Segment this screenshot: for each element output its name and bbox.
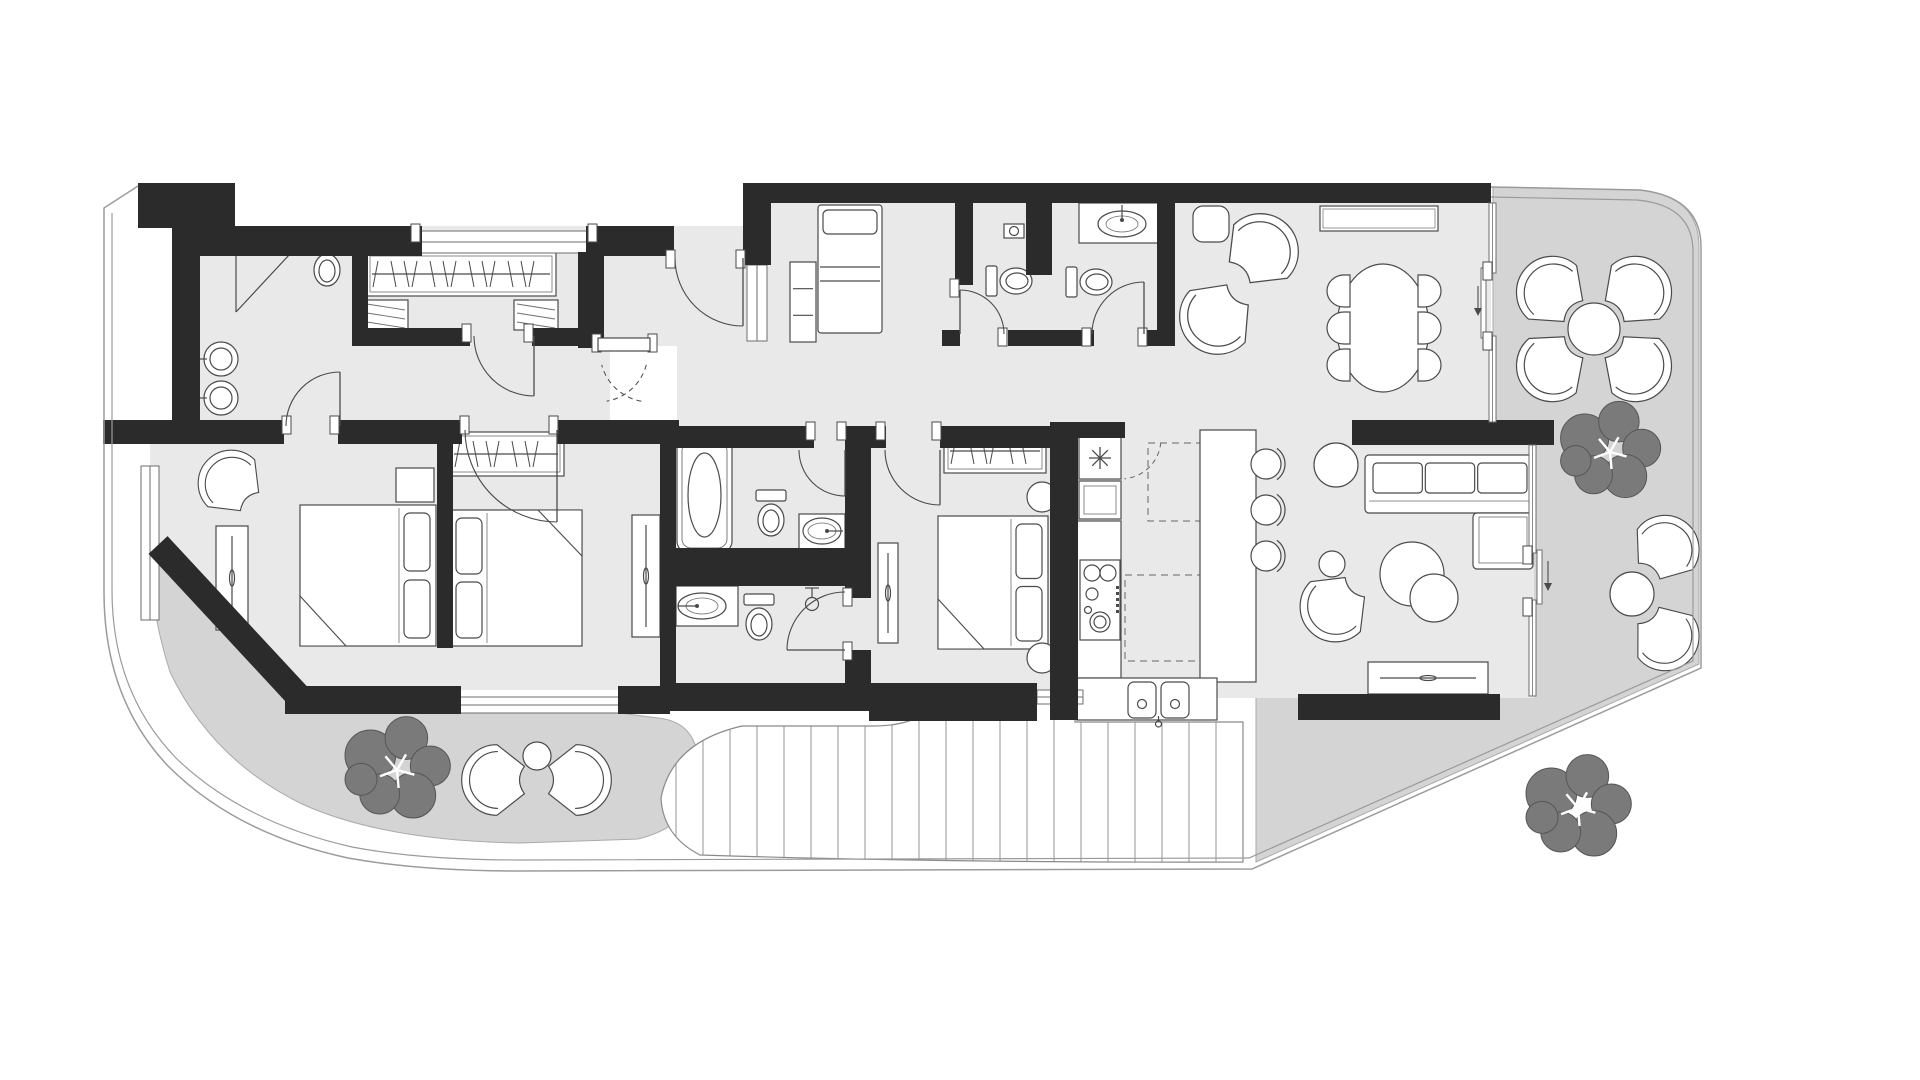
maid-closet [790,262,816,342]
coffee-table-small [1410,574,1458,622]
living-round-table [1314,443,1358,487]
terrace-tr-table [1568,303,1620,355]
master-nightstand [396,468,434,502]
bath-shower-toilet [744,594,774,640]
window-maid-left [747,265,767,341]
floor-plan-svg [0,0,1920,1080]
wc-toilet [986,266,1032,296]
floor-plan-page [0,0,1920,1080]
washing-machine [1079,437,1121,479]
terrace-br-table [1610,572,1654,616]
bedroom3-tv-console [878,543,898,643]
bathtub [677,437,732,553]
dining-table [1337,264,1429,392]
armchair-side-table [1319,551,1345,577]
dining-sideboard [1320,206,1438,231]
bath-tub-vanity [799,514,845,550]
tree-bottom-right [1526,755,1631,856]
maid-bed [818,205,882,333]
gas-stove [1080,560,1120,640]
wc-basin [1004,224,1024,238]
terrace-bl-table [523,742,551,770]
bath-shower-toilet [744,594,774,640]
window-top-closet [418,231,592,253]
window-bedroom2-bottom [459,697,621,713]
bed-master [300,505,436,646]
entry-closet-hangers [366,252,556,296]
glass-living-terrace-a [1529,445,1536,553]
window-bedroom1-left [141,466,159,620]
bedroom2-tv-console [632,515,660,637]
wc-toilet [986,266,1032,296]
bath3-toilet [1066,267,1112,297]
bed-3 [938,516,1048,649]
living-tv-console [1368,662,1488,694]
kitchen-appliance [1079,481,1121,519]
bed-2 [450,510,582,646]
bath3-toilet [1066,267,1112,297]
closet-shelf-right [514,300,558,330]
bath3-vanity [1079,203,1165,243]
closet-shelf-left [364,300,408,330]
kitchen-island [1200,430,1256,682]
bath-tub-toilet [756,490,786,536]
bath-shower-vanity [676,586,738,626]
nook-side-table [1193,206,1229,242]
bath-tub-toilet [756,490,786,536]
